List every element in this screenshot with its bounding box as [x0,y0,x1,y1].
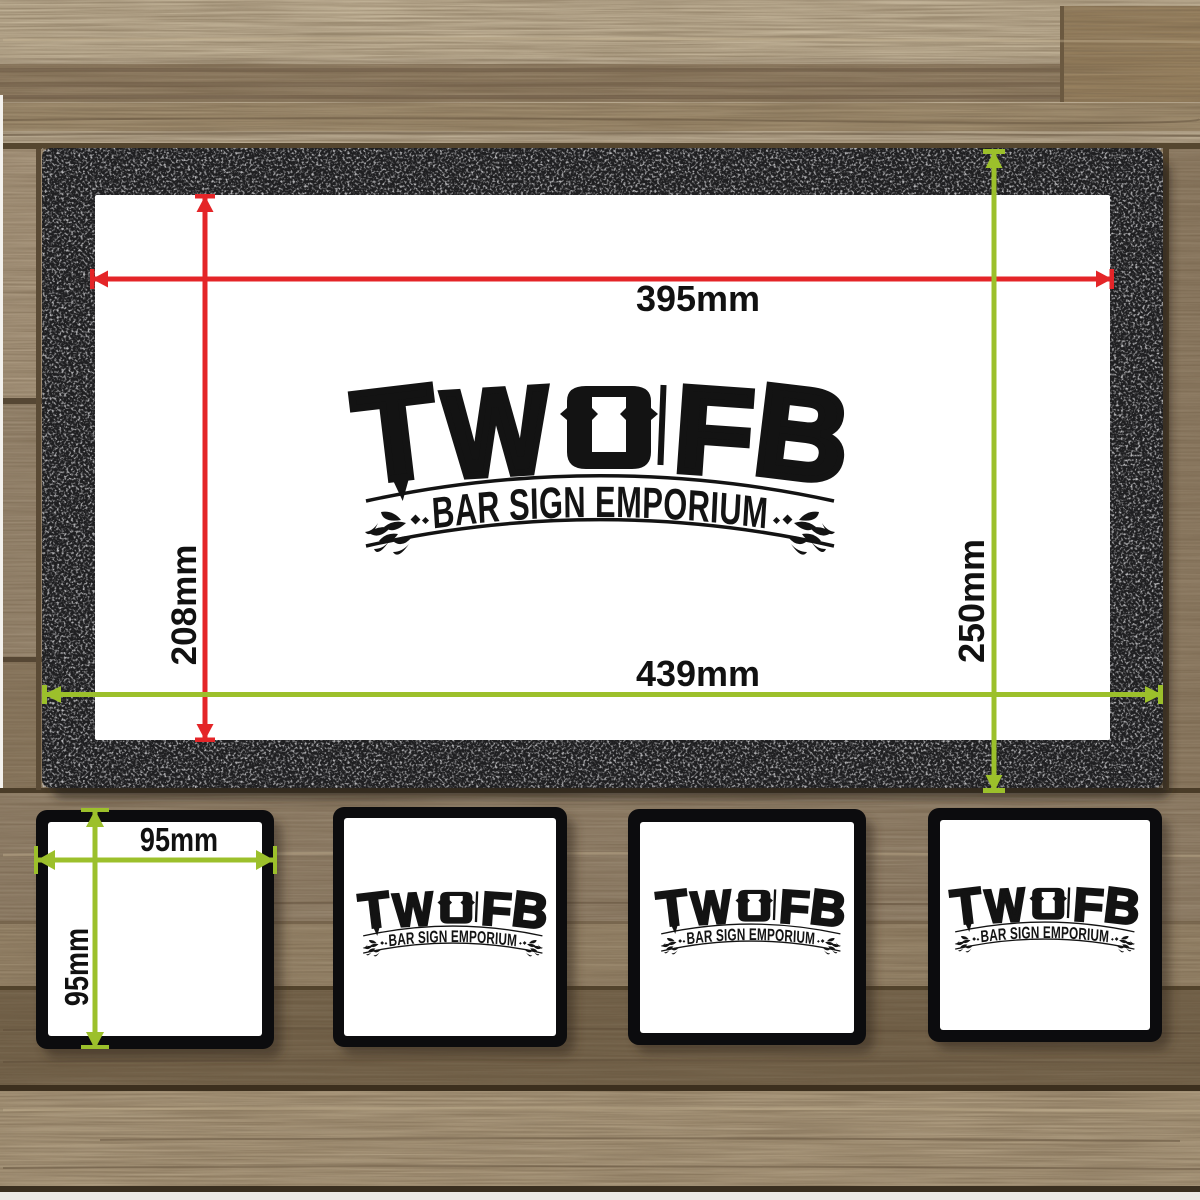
svg-text:395mm: 395mm [636,278,760,319]
svg-text:208mm: 208mm [165,545,204,666]
svg-text:250mm: 250mm [951,539,992,663]
svg-text:95mm: 95mm [140,823,218,859]
svg-text:439mm: 439mm [636,653,760,694]
svg-text:95mm: 95mm [60,928,96,1006]
svg-text:T: T [347,357,445,510]
